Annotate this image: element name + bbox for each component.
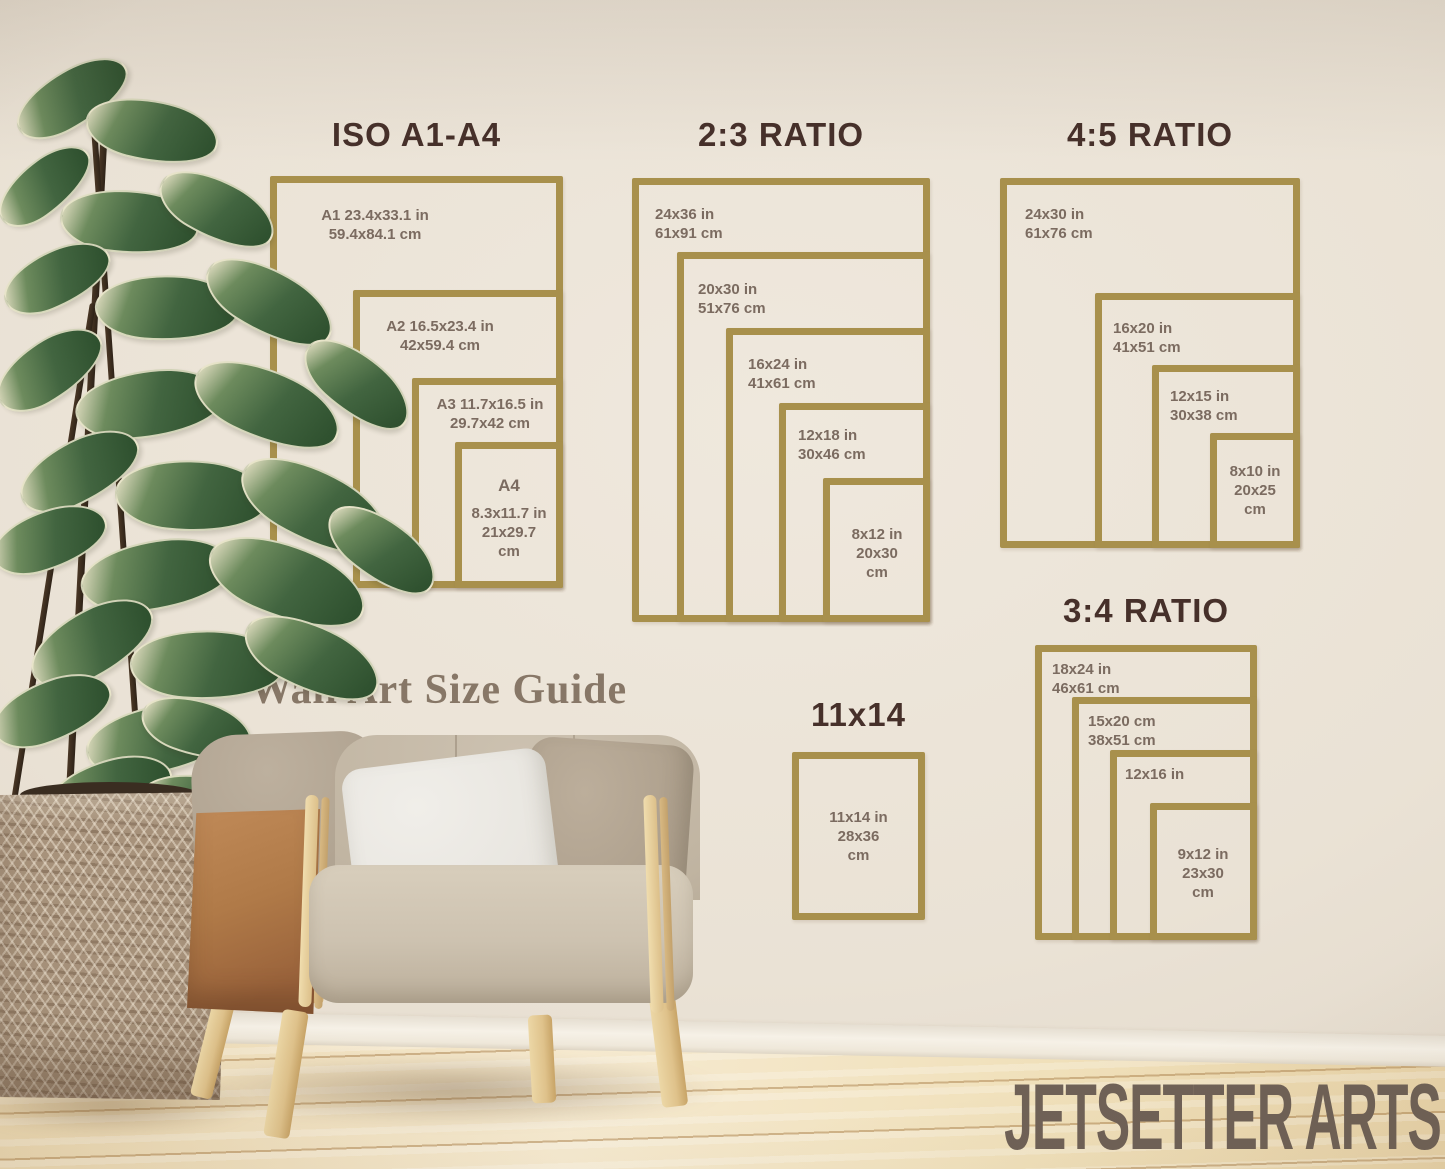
frame-label-20x30: 20x30 in 51x76 cm	[698, 280, 766, 318]
frame-label-24x30: 24x30 in 61x76 cm	[1025, 205, 1093, 243]
frame-label-8x12: 8x12 in 20x30 cm	[845, 525, 909, 582]
frame-label-12x15: 12x15 in 30x38 cm	[1170, 387, 1238, 425]
group-title-4-5: 4:5 RATIO	[1000, 116, 1300, 154]
armchair	[185, 725, 730, 1145]
group-title-3-4: 3:4 RATIO	[1035, 592, 1257, 630]
chair-leg-front-right	[528, 1014, 557, 1103]
group-area-11x14: 11x14 in 28x36 cm	[792, 752, 925, 920]
frame-label-16x24: 16x24 in 41x61 cm	[748, 355, 816, 393]
group-title-2-3: 2:3 RATIO	[632, 116, 930, 154]
frame-label-15x20: 15x20 cm 38x51 cm	[1088, 712, 1156, 750]
group-area-2-3: 24x36 in 61x91 cm 20x30 in 51x76 cm 16x2…	[632, 178, 930, 622]
frame-label-9x12: 9x12 in 23x30 cm	[1171, 845, 1235, 902]
frame-label-11x14: 11x14 in 28x36 cm	[802, 808, 915, 865]
frame-label-18x24: 18x24 in 46x61 cm	[1052, 660, 1120, 698]
frame-label-8x10: 8x10 in 20x25 cm	[1223, 462, 1287, 519]
frame-label-16x20: 16x20 in 41x51 cm	[1113, 319, 1181, 357]
group-area-4-5: 24x30 in 61x76 cm 16x20 in 41x51 cm 12x1…	[1000, 178, 1300, 548]
frame-label-a4: A4 8.3x11.7 in 21x29.7 cm	[464, 476, 554, 561]
frame-label-24x36: 24x36 in 61x91 cm	[655, 205, 723, 243]
group-area-3-4: 18x24 in 46x61 cm 15x20 cm 38x51 cm 12x1…	[1035, 645, 1257, 940]
brand-watermark: JETSETTER ARTS	[1004, 1070, 1441, 1164]
group-title-11x14: 11x14	[792, 696, 925, 734]
frame-label-12x16: 12x16 in	[1125, 765, 1184, 784]
room-scene: ISO A1-A4 A1 23.4x33.1 in 59.4x84.1 cm A…	[0, 0, 1445, 1169]
frame-label-12x18: 12x18 in 30x46 cm	[798, 426, 866, 464]
chair-seat-cushion	[309, 865, 693, 1003]
chair-front-rail	[311, 993, 697, 1015]
